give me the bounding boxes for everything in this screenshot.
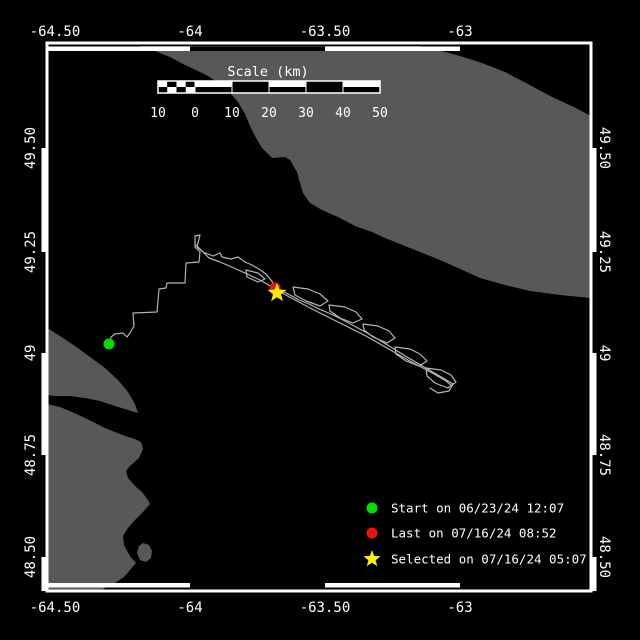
scalebar-subcell bbox=[186, 87, 195, 93]
zebra-top-segment bbox=[460, 47, 591, 52]
scalebar-subcell bbox=[167, 81, 176, 87]
lon-label-top: -63.50 bbox=[300, 24, 351, 40]
scalebar-segment bbox=[343, 81, 380, 87]
scalebar-segment bbox=[306, 87, 343, 93]
scalebar-subcell bbox=[158, 81, 167, 87]
zebra-left-segment bbox=[42, 148, 46, 252]
zebra-bottom-segment bbox=[325, 583, 460, 588]
zebra-right-segment bbox=[593, 557, 597, 591]
scalebar-label: 50 bbox=[372, 106, 388, 121]
scalebar-segment bbox=[232, 87, 269, 93]
zebra-left-segment bbox=[42, 252, 46, 353]
scalebar-segment bbox=[232, 81, 269, 87]
scalebar-segment bbox=[195, 81, 232, 87]
scalebar-segment bbox=[269, 81, 306, 87]
lat-label-left: 49 bbox=[23, 345, 39, 362]
scalebar-subcell bbox=[186, 81, 195, 87]
lon-label-bottom: -63.50 bbox=[300, 600, 351, 616]
zebra-bottom-segment bbox=[190, 583, 325, 588]
scalebar-subcell bbox=[167, 87, 176, 93]
lon-label-bottom: -63 bbox=[447, 600, 472, 616]
scalebar-label: 10 bbox=[224, 106, 240, 121]
scalebar-subcell bbox=[177, 87, 186, 93]
lon-label-bottom: -64 bbox=[177, 600, 202, 616]
legend-label: Start on 06/23/24 12:07 bbox=[391, 501, 564, 516]
zebra-right-segment bbox=[593, 455, 597, 557]
zebra-left-segment bbox=[42, 557, 46, 591]
zebra-top-segment bbox=[47, 47, 190, 52]
lat-label-right: 48.75 bbox=[596, 434, 612, 476]
lat-label-right: 49.50 bbox=[596, 127, 612, 169]
scalebar-label: 10 bbox=[150, 106, 166, 121]
lat-label-left: 48.75 bbox=[23, 434, 39, 476]
lat-label-right: 49 bbox=[596, 345, 612, 362]
lon-label-bottom: -64.50 bbox=[30, 600, 81, 616]
map-window: -64.50-64-63.50-63-64.50-64-63.50-6349.5… bbox=[0, 0, 640, 640]
lat-label-right: 48.50 bbox=[596, 536, 612, 578]
scalebar-label: 30 bbox=[298, 106, 314, 121]
legend-marker-last bbox=[367, 528, 378, 539]
lat-label-left: 49.25 bbox=[23, 231, 39, 273]
legend: Start on 06/23/24 12:07Last on 07/16/24 … bbox=[363, 501, 586, 567]
legend-marker-start bbox=[367, 503, 378, 514]
zebra-left-segment bbox=[42, 353, 46, 455]
zebra-bottom-segment bbox=[460, 583, 591, 588]
tracking-map: -64.50-64-63.50-63-64.50-64-63.50-6349.5… bbox=[0, 0, 640, 640]
scalebar-label: 20 bbox=[261, 106, 277, 121]
legend-label: Selected on 07/16/24 05:07 bbox=[391, 552, 587, 567]
scalebar-subcell bbox=[158, 87, 167, 93]
scalebar-label: 40 bbox=[335, 106, 351, 121]
zebra-right-segment bbox=[593, 43, 597, 148]
zebra-bottom-segment bbox=[47, 583, 190, 588]
lat-label-right: 49.25 bbox=[596, 231, 612, 273]
zebra-right-segment bbox=[593, 252, 597, 353]
lat-label-left: 48.50 bbox=[23, 536, 39, 578]
lon-label-top: -63 bbox=[447, 24, 472, 40]
zebra-right-segment bbox=[593, 353, 597, 455]
zebra-top-segment bbox=[190, 47, 325, 52]
zebra-top-segment bbox=[325, 47, 460, 52]
scalebar-title: Scale (km) bbox=[227, 64, 308, 80]
scalebar-subcell bbox=[177, 81, 186, 87]
scalebar-segment bbox=[269, 87, 306, 93]
lon-label-top: -64 bbox=[177, 24, 202, 40]
legend-label: Last on 07/16/24 08:52 bbox=[391, 526, 557, 541]
scalebar-segment bbox=[343, 87, 380, 93]
scalebar-label: 0 bbox=[191, 106, 199, 121]
zebra-left-segment bbox=[42, 43, 46, 148]
lat-label-left: 49.50 bbox=[23, 127, 39, 169]
lon-label-top: -64.50 bbox=[30, 24, 81, 40]
scalebar-segment bbox=[306, 81, 343, 87]
zebra-left-segment bbox=[42, 455, 46, 557]
scalebar-segment bbox=[195, 87, 232, 93]
zebra-right-segment bbox=[593, 148, 597, 252]
